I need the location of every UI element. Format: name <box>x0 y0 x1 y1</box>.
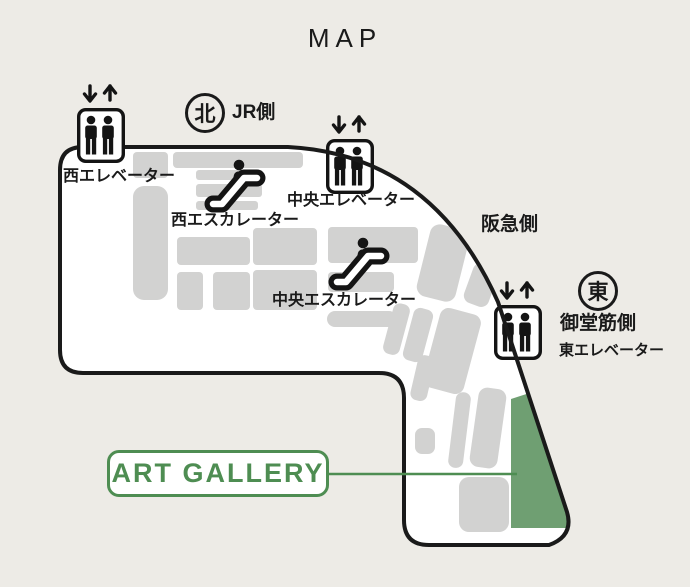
compass-north-icon: 北 <box>185 93 225 133</box>
compass-east-symbol: 東 <box>588 276 609 306</box>
map-page: MAP 北 JR側 東 御堂筋側 東エレベーター 阪急側 西エレベーター 西エス… <box>0 0 690 587</box>
jr-side-label: JR側 <box>232 103 275 122</box>
west-elevator-icon <box>79 86 124 161</box>
store-block <box>213 272 250 310</box>
page-title: MAP <box>0 25 690 51</box>
central-escalator-label: 中央エスカレーター <box>272 293 416 309</box>
store-block <box>459 477 509 532</box>
central-elevator-label: 中央エレベーター <box>287 193 415 209</box>
art-gallery-label: ART GALLERY <box>112 458 325 489</box>
store-block <box>253 228 317 265</box>
compass-east-icon: 東 <box>578 271 618 311</box>
compass-north-symbol: 北 <box>195 98 216 128</box>
hankyu-side-label: 阪急側 <box>481 215 538 234</box>
midosuji-side-label: 御堂筋側 <box>560 314 636 333</box>
store-block <box>177 272 203 310</box>
west-elevator-label: 西エレベーター <box>63 169 175 185</box>
store-block <box>133 186 168 300</box>
west-escalator-label: 西エスカレーター <box>171 213 299 229</box>
store-block <box>177 237 250 265</box>
east-elevator-label: 東エレベーター <box>559 343 664 358</box>
store-block <box>415 428 435 454</box>
store-block <box>327 311 397 327</box>
art-gallery-callout: ART GALLERY <box>107 450 329 497</box>
